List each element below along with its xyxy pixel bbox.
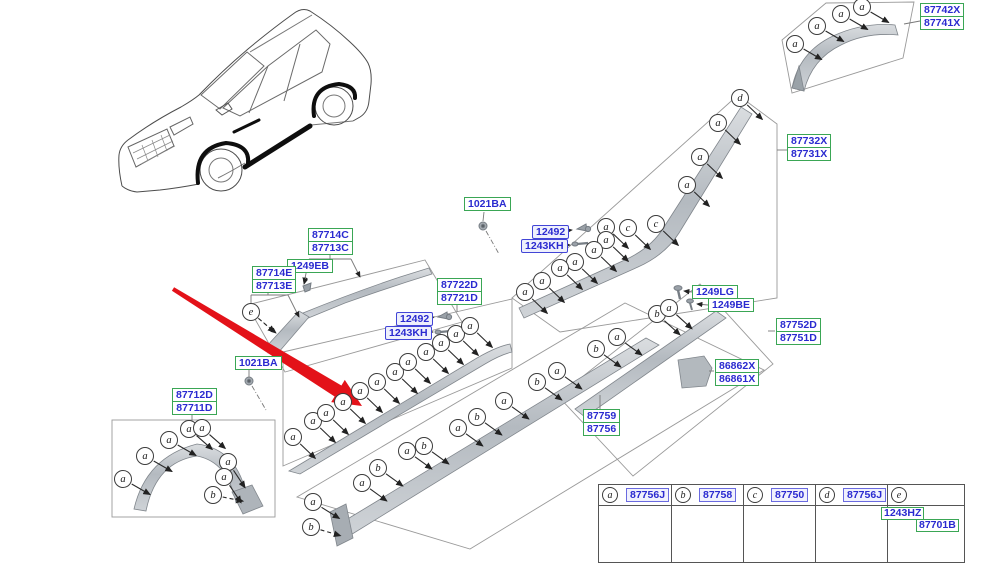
car-sketch bbox=[119, 10, 371, 192]
part-87759-end-cap bbox=[330, 504, 353, 546]
callout-a: a bbox=[548, 362, 566, 380]
part-86862X-bracket bbox=[678, 356, 712, 388]
part-87742X-arch-garnish bbox=[792, 24, 898, 91]
callout-a: a bbox=[533, 272, 551, 290]
callout-a: a bbox=[160, 431, 178, 449]
callout-b: b bbox=[204, 486, 222, 504]
label-1243KH[interactable]: 1243KH bbox=[521, 239, 568, 253]
callout-a: a bbox=[660, 299, 678, 317]
callout-b: b bbox=[587, 340, 605, 358]
part-number: 87713C bbox=[309, 241, 352, 254]
label-1249BE[interactable]: 1249BE bbox=[708, 298, 754, 312]
callout-a: a bbox=[317, 404, 335, 422]
part-number: 86862X bbox=[716, 360, 758, 372]
callout-arrow bbox=[415, 369, 430, 383]
legend-letter-d: d bbox=[819, 487, 835, 503]
callout-a: a bbox=[786, 35, 804, 53]
part-number: 87711D bbox=[173, 401, 216, 414]
part-number: 87731X bbox=[788, 147, 830, 160]
part-number: 87713E bbox=[253, 279, 295, 292]
legend-part-link[interactable]: 87756J bbox=[843, 488, 886, 502]
part-number: 1021BA bbox=[465, 198, 510, 210]
part-number: 87732X bbox=[788, 135, 830, 147]
part-number: 87759 bbox=[584, 410, 619, 422]
callout-a: a bbox=[284, 428, 302, 446]
callout-a: a bbox=[585, 241, 603, 259]
legend-letter-a: a bbox=[602, 487, 618, 503]
screw-icon bbox=[687, 299, 694, 310]
callout-arrow bbox=[402, 379, 417, 393]
part-number: 12492 bbox=[397, 313, 432, 325]
callout-a: a bbox=[399, 353, 417, 371]
legend-letter-c: c bbox=[747, 487, 763, 503]
legend-part-link[interactable]: 87750 bbox=[771, 488, 808, 502]
part-shapes bbox=[134, 24, 898, 546]
part-number: 1249BE bbox=[709, 299, 753, 311]
leader-lines bbox=[192, 21, 920, 420]
callout-arrows bbox=[132, 12, 889, 536]
callout-a: a bbox=[114, 470, 132, 488]
label-87759-87756[interactable]: 8775987756 bbox=[583, 409, 620, 436]
callout-arrow bbox=[415, 457, 432, 469]
highlighted-moldings bbox=[198, 84, 355, 183]
callout-a: a bbox=[351, 382, 369, 400]
screw-icon bbox=[674, 286, 682, 299]
label-1021BA[interactable]: 1021BA bbox=[464, 197, 511, 211]
part-number: 87714E bbox=[253, 267, 295, 279]
callout-c: c bbox=[647, 215, 665, 233]
callout-arrow bbox=[300, 444, 315, 458]
part-number: 87756 bbox=[584, 422, 619, 435]
callout-arrow bbox=[333, 420, 348, 434]
legend-cell-c: c 87750 bbox=[743, 485, 815, 562]
part-number: 86861X bbox=[716, 372, 758, 385]
callout-a: a bbox=[608, 328, 626, 346]
legend-letter-e: e bbox=[891, 487, 907, 503]
part-number: 87742X bbox=[921, 4, 963, 16]
callout-arrow bbox=[664, 321, 680, 335]
callout-a: a bbox=[304, 493, 322, 511]
label-87714C-87713C[interactable]: 87714C87713C bbox=[308, 228, 353, 255]
label-87742X-87741X[interactable]: 87742X87741X bbox=[920, 3, 964, 30]
callout-arrow bbox=[367, 398, 382, 412]
part-number: 87752D bbox=[777, 319, 820, 331]
callout-arrow bbox=[320, 428, 335, 442]
clip-icon bbox=[303, 283, 311, 292]
part-number: 1243KH bbox=[386, 327, 431, 339]
label-12492[interactable]: 12492 bbox=[396, 312, 433, 326]
callout-arrow bbox=[635, 235, 650, 249]
part-number: 87712D bbox=[173, 389, 216, 401]
callout-a: a bbox=[368, 373, 386, 391]
part-number: 12492 bbox=[533, 226, 568, 238]
callout-arrow bbox=[871, 12, 889, 23]
part-number: 87722D bbox=[438, 279, 481, 291]
part-number: 87714C bbox=[309, 229, 352, 241]
label-86862X-86861X[interactable]: 86862X86861X bbox=[715, 359, 759, 386]
label-87701B[interactable]: 87701B bbox=[916, 519, 959, 532]
callout-a: a bbox=[136, 447, 154, 465]
callout-a: a bbox=[193, 419, 211, 437]
callout-arrow bbox=[386, 474, 403, 486]
label-87712D-87711D[interactable]: 87712D87711D bbox=[172, 388, 217, 415]
callout-arrow bbox=[448, 350, 463, 364]
callout-a: a bbox=[832, 5, 850, 23]
callout-e: e bbox=[242, 303, 260, 321]
callout-arrow bbox=[463, 341, 478, 355]
legend-part-link[interactable]: 87756J bbox=[626, 488, 669, 502]
callout-a: a bbox=[551, 259, 569, 277]
pin-icon bbox=[577, 224, 591, 232]
callout-a: a bbox=[516, 283, 534, 301]
callout-a: a bbox=[461, 317, 479, 335]
grommet-icon bbox=[479, 222, 487, 230]
legend-table: a 87756J b 87758 c 87750 d 87756J e bbox=[598, 484, 965, 563]
part-number: 1249LG bbox=[693, 286, 737, 298]
legend-cell-a: a 87756J bbox=[599, 485, 671, 562]
callout-a: a bbox=[691, 148, 709, 166]
callout-a: a bbox=[398, 442, 416, 460]
callout-a: a bbox=[353, 474, 371, 492]
callout-b: b bbox=[528, 373, 546, 391]
callout-a: a bbox=[334, 393, 352, 411]
grommet-icon bbox=[245, 377, 253, 385]
label-87752D-87751D[interactable]: 87752D87751D bbox=[776, 318, 821, 345]
part-number: 1021BA bbox=[236, 357, 281, 369]
callout-a: a bbox=[808, 17, 826, 35]
callout-d: d bbox=[731, 89, 749, 107]
callout-c: c bbox=[619, 219, 637, 237]
callout-arrow bbox=[210, 435, 226, 449]
parts-diagram: a 87756J b 87758 c 87750 d 87756J e bbox=[0, 0, 1000, 569]
callout-a: a bbox=[678, 176, 696, 194]
callout-b: b bbox=[415, 437, 433, 455]
legend-letter-b: b bbox=[675, 487, 691, 503]
callout-arrow bbox=[384, 389, 399, 403]
part-number: 87721D bbox=[438, 291, 481, 304]
part-number: 87741X bbox=[921, 16, 963, 29]
label-87722D-87721D[interactable]: 87722D87721D bbox=[437, 278, 482, 305]
callout-b: b bbox=[468, 408, 486, 426]
callout-b: b bbox=[302, 518, 320, 536]
label-1021BA[interactable]: 1021BA bbox=[235, 356, 282, 370]
legend-cell-e: e 1243HZ 87701B bbox=[887, 485, 964, 562]
label-87732X-87731X[interactable]: 87732X87731X bbox=[787, 134, 831, 161]
label-1249LG[interactable]: 1249LG bbox=[692, 285, 738, 299]
label-87714E-87713E[interactable]: 87714E87713E bbox=[252, 266, 296, 293]
callout-arrow bbox=[676, 315, 692, 329]
label-12492[interactable]: 12492 bbox=[532, 225, 569, 239]
legend-cell-d: d 87756J bbox=[815, 485, 887, 562]
callout-arrow bbox=[370, 489, 387, 501]
callout-a: a bbox=[449, 419, 467, 437]
callout-arrow bbox=[432, 452, 449, 464]
legend-part-link[interactable]: 87758 bbox=[699, 488, 736, 502]
callout-b: b bbox=[369, 459, 387, 477]
callout-arrow bbox=[613, 247, 628, 261]
callout-arrow bbox=[477, 333, 492, 347]
callout-arrow bbox=[433, 359, 448, 373]
part-number: 87751D bbox=[777, 331, 820, 344]
callout-a: a bbox=[215, 468, 233, 486]
part-number: 1243KH bbox=[522, 240, 567, 252]
callout-a: a bbox=[495, 392, 513, 410]
legend-cell-b: b 87758 bbox=[671, 485, 743, 562]
label-1243KH[interactable]: 1243KH bbox=[385, 326, 432, 340]
callout-a: a bbox=[709, 114, 727, 132]
callout-arrow bbox=[350, 409, 365, 423]
